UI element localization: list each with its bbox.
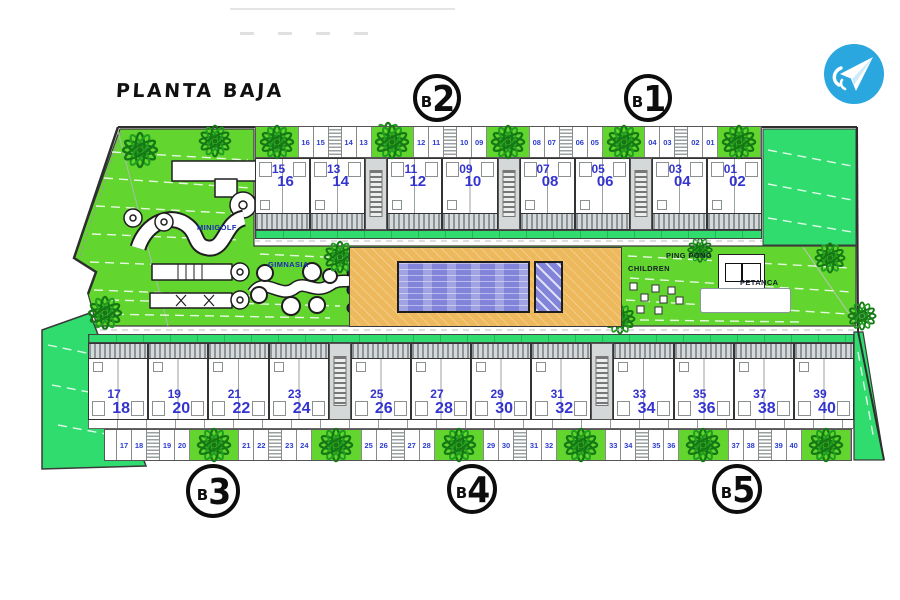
plant-icon xyxy=(195,426,233,464)
parking-number: 27 xyxy=(407,441,415,450)
unit-module: 25 26 xyxy=(351,343,411,420)
garden-strip xyxy=(255,230,762,239)
unit-numbers: 25 26 xyxy=(352,389,410,416)
parking-cell: 36 xyxy=(664,430,679,460)
unit-number-lower: 12 xyxy=(409,175,426,189)
pergola-hatch xyxy=(352,344,410,359)
unit-numbers: 19 20 xyxy=(149,389,207,416)
parking-cell: 33 xyxy=(606,430,621,460)
building-row-bottom: 17 18 19 20 xyxy=(88,334,854,461)
unit-module: 07 08 xyxy=(520,158,575,230)
unit-number-lower: 28 xyxy=(435,401,453,416)
unit-number-lower: 32 xyxy=(555,401,573,416)
parking-cell xyxy=(444,127,457,157)
parking-cell xyxy=(190,430,239,460)
parking-cell: 40 xyxy=(787,430,802,460)
plant-icon xyxy=(258,123,296,161)
unit-module xyxy=(591,343,613,420)
pergola-hatch xyxy=(653,213,706,229)
parking-cell xyxy=(147,430,160,460)
pergola-hatch xyxy=(388,213,441,229)
unit-module: 21 22 xyxy=(208,343,268,420)
unit-module: 15 16 xyxy=(255,158,310,230)
parking-cell xyxy=(759,430,772,460)
unit-module xyxy=(329,343,351,420)
unit-module xyxy=(630,158,652,230)
unit-number-lower: 18 xyxy=(112,401,130,416)
unit-module xyxy=(498,158,520,230)
pergola-hatch xyxy=(149,344,207,359)
parking-cell: 31 xyxy=(527,430,542,460)
petanca-court xyxy=(700,288,791,313)
unit-number-lower: 10 xyxy=(465,175,482,189)
parking-cell xyxy=(312,430,361,460)
unit-module: 03 04 xyxy=(652,158,707,230)
parking-cell: 37 xyxy=(729,430,744,460)
unit-number-lower: 08 xyxy=(542,175,559,189)
unit-number-lower: 40 xyxy=(818,401,836,416)
parking-cell xyxy=(560,127,573,157)
parking-cell: 06 xyxy=(573,127,588,157)
unit-module: 23 24 xyxy=(269,343,329,420)
parking-cell: 07 xyxy=(545,127,560,157)
parking-number: 39 xyxy=(774,441,782,450)
unit-number-lower: 16 xyxy=(277,175,294,189)
unit-module: 01 02 xyxy=(707,158,762,230)
parking-number: 35 xyxy=(652,441,660,450)
parking-cell: 39 xyxy=(772,430,787,460)
plant-icon xyxy=(684,426,722,464)
block-label-b3: B3 xyxy=(186,464,240,518)
parking-cell: 13 xyxy=(357,127,372,157)
swimming-pool xyxy=(397,261,530,313)
unit-module: 27 28 xyxy=(411,343,471,420)
parking-cell: 05 xyxy=(588,127,603,157)
bottom-unit-modules: 17 18 19 20 xyxy=(88,343,854,420)
pergola-hatch xyxy=(256,213,309,229)
gimnasia-label: GIMNASIA xyxy=(268,260,309,269)
parking-cell xyxy=(435,430,484,460)
plant-icon xyxy=(562,426,600,464)
parking-number: 11 xyxy=(432,138,440,147)
parking-cell: 17 xyxy=(117,430,132,460)
parking-cell: 16 xyxy=(299,127,314,157)
parking-number: 24 xyxy=(300,441,308,450)
parking-number: 37 xyxy=(731,441,739,450)
parking-number: 34 xyxy=(624,441,632,450)
block-prefix: B xyxy=(632,93,643,111)
block-label-b4: B4 xyxy=(447,464,497,514)
pergola-hatch xyxy=(521,213,574,229)
unit-number-lower: 22 xyxy=(233,401,251,416)
unit-number-lower: 34 xyxy=(638,401,656,416)
plant-icon xyxy=(373,123,411,161)
unit-numbers: 13 14 xyxy=(311,164,364,190)
unit-number-lower: 38 xyxy=(758,401,776,416)
parking-cell xyxy=(372,127,415,157)
parking-number: 23 xyxy=(285,441,293,450)
parking-cell: 01 xyxy=(703,127,718,157)
bottom-parking-band: 17 18 19 20 xyxy=(104,429,852,461)
unit-numbers: 39 40 xyxy=(795,389,853,416)
block-prefix: B xyxy=(456,484,467,502)
plant-icon xyxy=(807,426,845,464)
unit-number-lower: 30 xyxy=(495,401,513,416)
parking-number: 17 xyxy=(120,441,128,450)
parking-number: 36 xyxy=(667,441,675,450)
unit-number-lower: 02 xyxy=(729,175,746,189)
building-row-top: 16 15 14 13 xyxy=(255,126,762,239)
parking-number: 06 xyxy=(576,138,584,147)
unit-numbers: 23 24 xyxy=(270,389,328,416)
parking-number: 05 xyxy=(591,138,599,147)
parking-number: 10 xyxy=(460,138,468,147)
parking-cell: 14 xyxy=(342,127,357,157)
parking-cell xyxy=(256,127,299,157)
pergola-hatch xyxy=(209,344,267,359)
parking-cell: 34 xyxy=(621,430,636,460)
parking-cell: 03 xyxy=(660,127,675,157)
parking-number: 12 xyxy=(417,138,425,147)
unit-number-lower: 04 xyxy=(674,175,691,189)
unit-module: 33 34 xyxy=(613,343,673,420)
block-prefix: B xyxy=(421,93,432,111)
pergola-hatch xyxy=(735,344,793,359)
parking-number: 30 xyxy=(502,441,510,450)
parking-number: 40 xyxy=(789,441,797,450)
parking-number: 28 xyxy=(422,441,430,450)
parking-number: 20 xyxy=(178,441,186,450)
parking-cell: 09 xyxy=(472,127,487,157)
garden-strip xyxy=(88,334,854,343)
pergola-hatch xyxy=(532,344,590,359)
unit-module xyxy=(365,158,387,230)
parking-cell xyxy=(105,430,117,460)
unit-module: 17 18 xyxy=(88,343,148,420)
unit-number-lower: 26 xyxy=(375,401,393,416)
block-prefix: B xyxy=(721,484,732,502)
unit-numbers: 29 30 xyxy=(472,389,530,416)
unit-numbers: 01 02 xyxy=(708,164,761,190)
block-label-b5: B5 xyxy=(712,464,762,514)
pergola-hatch xyxy=(443,213,496,229)
top-parking-band: 16 15 14 13 xyxy=(255,126,762,158)
parking-cell: 11 xyxy=(429,127,444,157)
parking-cell xyxy=(802,430,851,460)
unit-module: 35 36 xyxy=(674,343,734,420)
block-label-b1: B1 xyxy=(624,74,672,122)
petanca-label: PETANCA xyxy=(740,278,779,287)
minigolf-label: MINIGOLF xyxy=(197,223,237,232)
parking-number: 13 xyxy=(359,138,367,147)
parking-number: 02 xyxy=(691,138,699,147)
parking-cell xyxy=(675,127,688,157)
parking-cell xyxy=(392,430,405,460)
parking-cell: 25 xyxy=(362,430,377,460)
kids-pool xyxy=(534,261,563,313)
ping-pong-label: PING PONG xyxy=(666,251,712,260)
unit-module: 09 10 xyxy=(442,158,497,230)
unit-module: 31 32 xyxy=(531,343,591,420)
parking-number: 08 xyxy=(533,138,541,147)
parking-cell: 30 xyxy=(499,430,514,460)
unit-numbers: 15 16 xyxy=(256,164,309,190)
unit-module: 19 20 xyxy=(148,343,208,420)
unit-numbers: 03 04 xyxy=(653,164,706,190)
parking-number: 25 xyxy=(364,441,372,450)
plant-icon xyxy=(720,123,758,161)
parking-cell: 20 xyxy=(175,430,190,460)
unit-numbers: 35 36 xyxy=(675,389,733,416)
parking-cell: 27 xyxy=(405,430,420,460)
parking-number: 18 xyxy=(135,441,143,450)
unit-module: 37 38 xyxy=(734,343,794,420)
pergola-hatch xyxy=(311,213,364,229)
plant-icon xyxy=(440,426,478,464)
parking-cell xyxy=(329,127,342,157)
block-digit: 5 xyxy=(732,471,753,507)
site-plan-canvas: PLANTA BAJA B2 B1 B3 B4 B5 xyxy=(0,0,900,600)
parking-cell xyxy=(603,127,646,157)
parking-cell: 28 xyxy=(420,430,435,460)
pergola-hatch xyxy=(614,344,672,359)
unit-module: 11 12 xyxy=(387,158,442,230)
parking-number: 01 xyxy=(706,138,714,147)
unit-numbers: 27 28 xyxy=(412,389,470,416)
parking-cell: 35 xyxy=(649,430,664,460)
parking-number: 31 xyxy=(530,441,538,450)
parking-number: 33 xyxy=(609,441,617,450)
block-digit: 2 xyxy=(432,80,453,116)
top-unit-modules: 15 16 13 14 xyxy=(255,158,762,230)
brand-logo xyxy=(820,40,888,108)
unit-numbers: 21 22 xyxy=(209,389,267,416)
parking-number: 04 xyxy=(648,138,656,147)
pergola-hatch xyxy=(472,344,530,359)
parking-number: 14 xyxy=(344,138,352,147)
pergola-hatch xyxy=(412,344,470,359)
parking-number: 07 xyxy=(548,138,556,147)
parking-cell: 19 xyxy=(160,430,175,460)
parking-cell: 29 xyxy=(484,430,499,460)
parking-cell: 23 xyxy=(282,430,297,460)
parking-number: 29 xyxy=(487,441,495,450)
unit-module: 39 40 xyxy=(794,343,854,420)
pergola-hatch xyxy=(795,344,853,359)
block-digit: 4 xyxy=(467,471,488,507)
unit-numbers: 07 08 xyxy=(521,164,574,190)
pergola-hatch xyxy=(89,344,147,359)
plant-icon xyxy=(489,123,527,161)
parking-cell: 24 xyxy=(297,430,312,460)
parking-number: 32 xyxy=(545,441,553,450)
parking-number: 19 xyxy=(163,441,171,450)
parking-cell xyxy=(557,430,606,460)
parking-cell: 08 xyxy=(530,127,545,157)
unit-numbers: 11 12 xyxy=(388,164,441,190)
unit-number-lower: 36 xyxy=(698,401,716,416)
parking-number: 26 xyxy=(379,441,387,450)
plant-icon xyxy=(605,123,643,161)
parking-cell: 12 xyxy=(414,127,429,157)
parking-number: 03 xyxy=(663,138,671,147)
parking-cell: 22 xyxy=(254,430,269,460)
pergola-hatch xyxy=(708,213,761,229)
parking-cell: 10 xyxy=(457,127,472,157)
unit-module: 13 14 xyxy=(310,158,365,230)
pergola-hatch xyxy=(270,344,328,359)
parking-number: 16 xyxy=(301,138,309,147)
children-label: CHILDREN xyxy=(628,264,670,273)
parking-number: 15 xyxy=(316,138,324,147)
unit-module: 29 30 xyxy=(471,343,531,420)
parking-cell xyxy=(269,430,282,460)
parking-cell: 02 xyxy=(688,127,703,157)
parking-cell: 04 xyxy=(645,127,660,157)
parking-number: 09 xyxy=(475,138,483,147)
block-prefix: B xyxy=(197,486,208,504)
pergola-hatch xyxy=(576,213,629,229)
unit-number-lower: 24 xyxy=(293,401,311,416)
unit-numbers: 31 32 xyxy=(532,389,590,416)
plant-icon xyxy=(317,426,355,464)
unit-number-lower: 06 xyxy=(597,175,614,189)
parking-number: 21 xyxy=(242,441,250,450)
parking-cell: 38 xyxy=(744,430,759,460)
unit-numbers: 09 10 xyxy=(443,164,496,190)
parking-cell xyxy=(487,127,530,157)
unit-numbers: 37 38 xyxy=(735,389,793,416)
pergola-hatch xyxy=(675,344,733,359)
parking-cell: 32 xyxy=(542,430,557,460)
block-label-b2: B2 xyxy=(413,74,461,122)
unit-module: 05 06 xyxy=(575,158,630,230)
parking-cell xyxy=(636,430,649,460)
unit-number-lower: 20 xyxy=(172,401,190,416)
block-digit: 1 xyxy=(643,80,664,116)
block-digit: 3 xyxy=(208,473,229,509)
parking-cell: 26 xyxy=(377,430,392,460)
unit-numbers: 17 18 xyxy=(89,389,147,416)
parking-cell: 15 xyxy=(314,127,329,157)
parking-number: 22 xyxy=(257,441,265,450)
parking-cell xyxy=(514,430,527,460)
parking-cell: 21 xyxy=(239,430,254,460)
page-title: PLANTA BAJA xyxy=(115,80,284,102)
unit-number-lower: 14 xyxy=(332,175,349,189)
parking-cell: 18 xyxy=(132,430,147,460)
unit-numbers: 33 34 xyxy=(614,389,672,416)
unit-numbers: 05 06 xyxy=(576,164,629,190)
parking-number: 38 xyxy=(746,441,754,450)
parking-cell xyxy=(718,127,761,157)
parking-cell xyxy=(679,430,728,460)
